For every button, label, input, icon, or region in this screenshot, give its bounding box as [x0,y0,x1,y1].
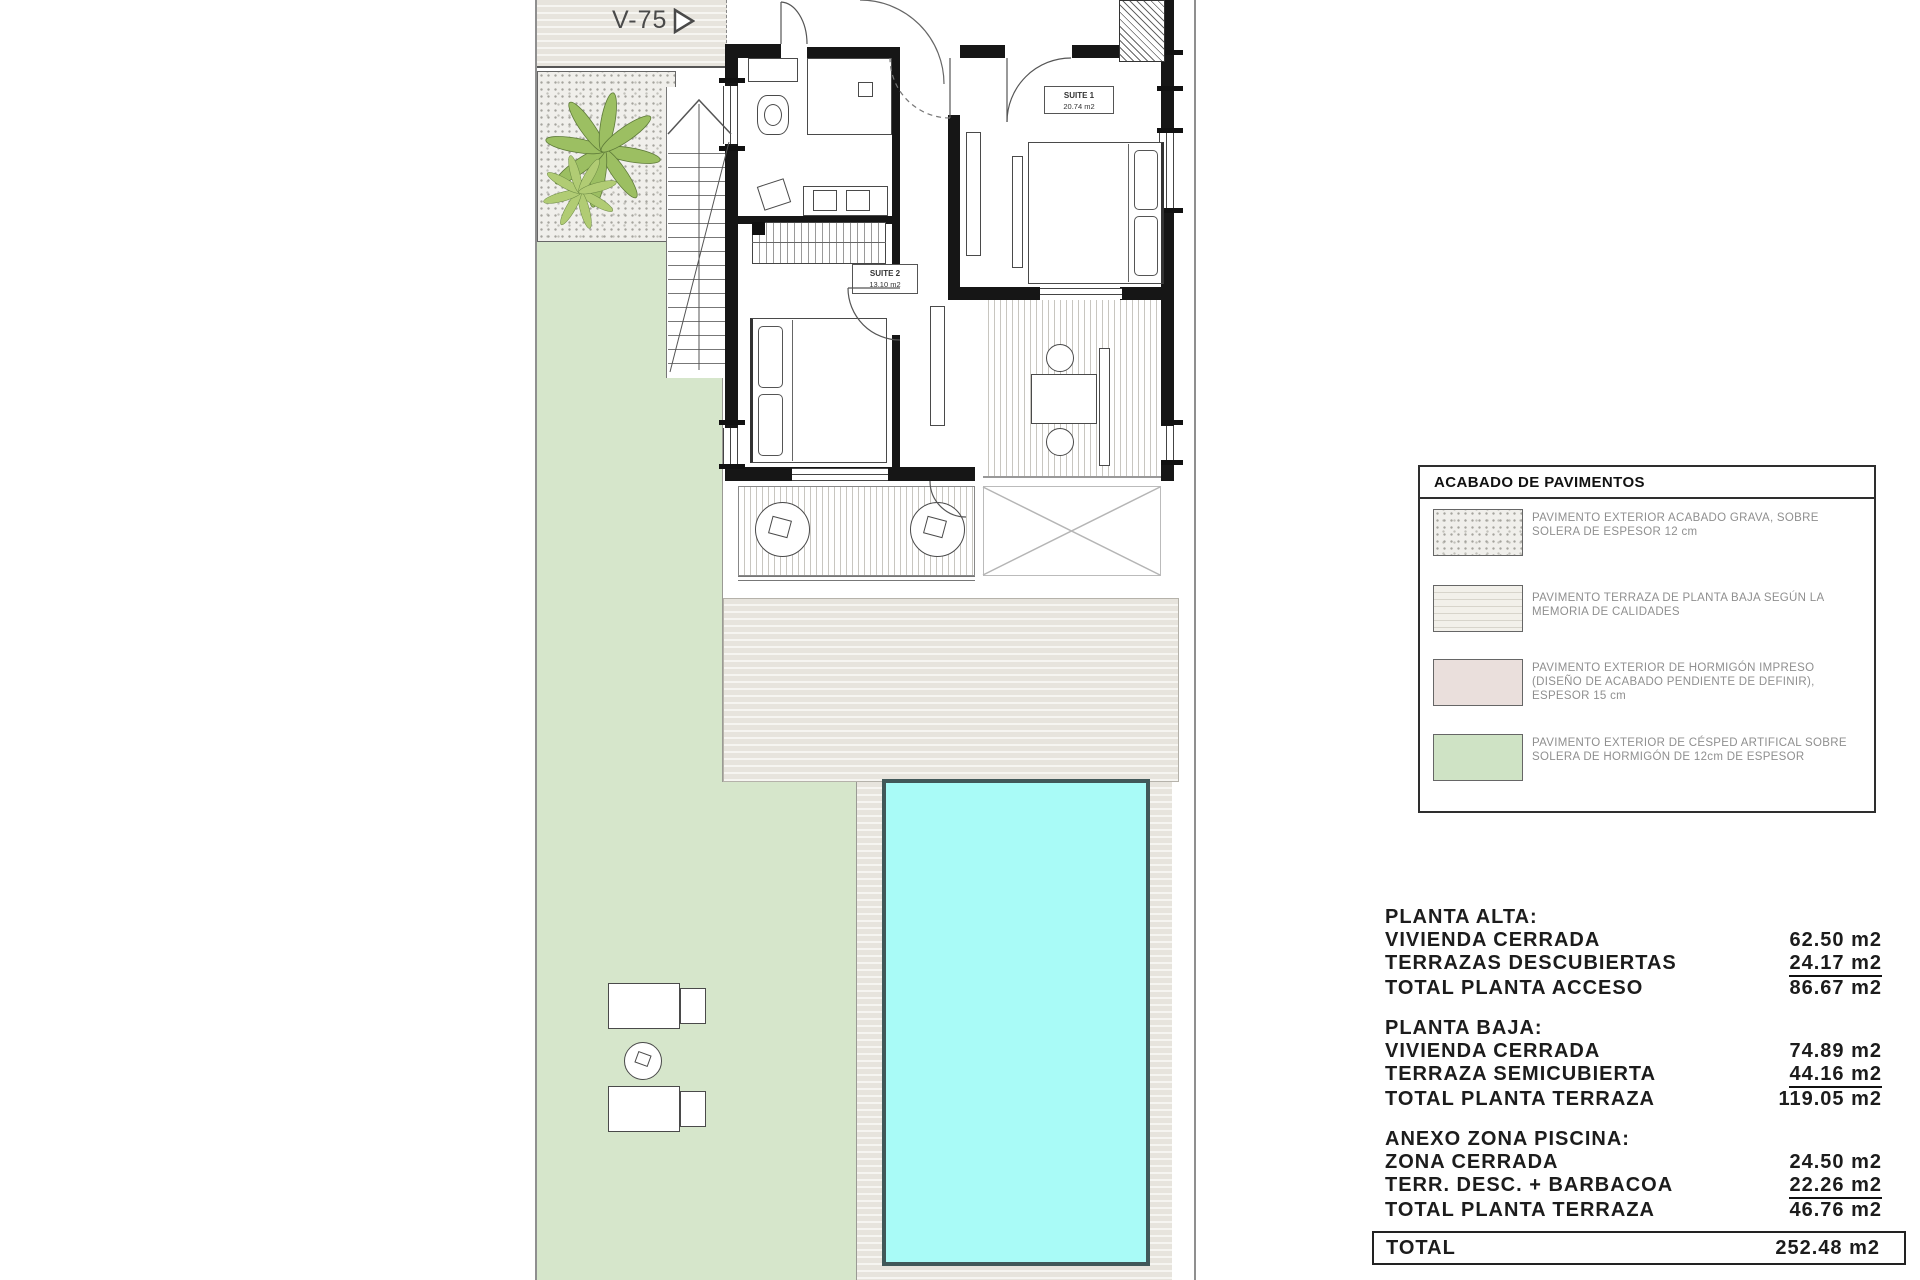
door-arc [781,0,1071,517]
row-label: TOTAL PLANTA TERRAZA [1385,1088,1655,1111]
legend-swatch-terrace [1433,585,1523,632]
table-row: ZONA CERRADA 24.50 m2 [1385,1151,1882,1174]
table-row: TOTAL PLANTA ACCESO 86.67 m2 [1385,977,1882,1000]
row-value: 22.26 m2 [1789,1174,1882,1199]
areas-section-planta-alta: PLANTA ALTA: VIVIENDA CERRADA 62.50 m2 T… [1385,906,1882,1000]
floor-plan-canvas: V-75 [0,0,1920,1280]
section-title: PLANTA BAJA: [1385,1017,1882,1040]
row-value: 119.05 m2 [1778,1088,1882,1111]
table-row: TOTAL PLANTA TERRAZA 46.76 m2 [1385,1199,1882,1222]
row-value: 44.16 m2 [1789,1063,1882,1088]
legend-swatch-concrete [1433,659,1523,706]
legend-item-text: PAVIMENTO EXTERIOR DE HORMIGÓN IMPRESO (… [1532,661,1867,703]
table-row: TOTAL PLANTA TERRAZA 119.05 m2 [1385,1088,1882,1111]
row-value: 86.67 m2 [1789,977,1882,1000]
stairs-arrow-icon [668,100,731,372]
legend-item-text: PAVIMENTO TERRAZA DE PLANTA BAJA SEGÚN L… [1532,591,1867,619]
row-value: 62.50 m2 [1789,929,1882,952]
row-label: TOTAL PLANTA TERRAZA [1385,1199,1655,1222]
row-label: TERRAZA SEMICUBIERTA [1385,1063,1656,1088]
void-cross-icon [983,487,1160,575]
legend-swatch-gravel [1433,509,1523,556]
legend-item-text: PAVIMENTO EXTERIOR DE CÉSPED ARTIFICAL S… [1532,736,1867,764]
row-label: TERR. DESC. + BARBACOA [1385,1174,1673,1199]
row-value: 46.76 m2 [1789,1199,1882,1222]
row-value: 74.89 m2 [1789,1040,1882,1063]
legend-item-text: PAVIMENTO EXTERIOR ACABADO GRAVA, SOBRE … [1532,511,1867,539]
total-label: TOTAL [1386,1237,1456,1260]
section-title: PLANTA ALTA: [1385,906,1882,929]
areas-table: PLANTA ALTA: VIVIENDA CERRADA 62.50 m2 T… [1385,906,1882,1239]
table-row: TERR. DESC. + BARBACOA 22.26 m2 [1385,1174,1882,1199]
row-value: 24.17 m2 [1789,952,1882,977]
row-label: ZONA CERRADA [1385,1151,1558,1174]
legend-title: ACABADO DE PAVIMENTOS [1420,467,1874,499]
areas-section-planta-baja: PLANTA BAJA: VIVIENDA CERRADA 74.89 m2 T… [1385,1017,1882,1111]
row-value: 24.50 m2 [1789,1151,1882,1174]
palm-plant-icon [545,92,662,209]
row-label: TOTAL PLANTA ACCESO [1385,977,1643,1000]
row-label: VIVIENDA CERRADA [1385,929,1600,952]
total-row: TOTAL 252.48 m2 [1372,1231,1906,1265]
legend-box: ACABADO DE PAVIMENTOS PAVIMENTO EXTERIOR… [1418,465,1876,813]
table-row: VIVIENDA CERRADA 74.89 m2 [1385,1040,1882,1063]
table-row: VIVIENDA CERRADA 62.50 m2 [1385,929,1882,952]
total-value: 252.48 m2 [1775,1237,1880,1260]
legend-swatch-grass [1433,734,1523,781]
row-label: TERRAZAS DESCUBIERTAS [1385,952,1677,977]
section-title: ANEXO ZONA PISCINA: [1385,1128,1882,1151]
table-row: TERRAZA SEMICUBIERTA 44.16 m2 [1385,1063,1882,1088]
areas-section-anexo-piscina: ANEXO ZONA PISCINA: ZONA CERRADA 24.50 m… [1385,1128,1882,1222]
row-label: VIVIENDA CERRADA [1385,1040,1600,1063]
table-row: TERRAZAS DESCUBIERTAS 24.17 m2 [1385,952,1882,977]
